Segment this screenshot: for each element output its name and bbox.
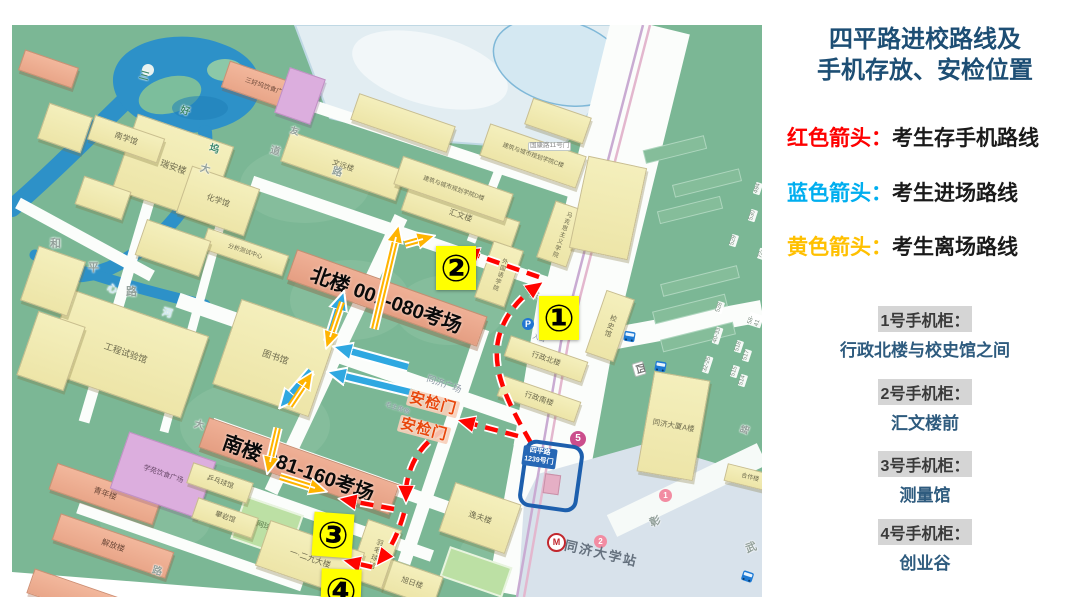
parking-letter: P: [525, 320, 531, 329]
cabinet-1-label: 1号手机柜：: [878, 306, 973, 332]
cabinet-3-label: 3号手机柜：: [878, 451, 973, 477]
place-label: 国康路11号门: [528, 142, 571, 151]
marker-number: ①: [543, 300, 574, 337]
legend-yellow-label: 黄色箭头：: [787, 236, 892, 259]
legend-blue-label: 蓝色箭头：: [787, 182, 892, 205]
building-label: 解放楼: [100, 538, 126, 554]
cabinet-3-info: 3号手机柜： 测量馆: [780, 451, 1070, 506]
road-label: 平: [88, 263, 99, 274]
metro-letter: M: [553, 538, 561, 547]
building-label: 学苑饮食广场: [142, 465, 184, 486]
building-label: 工程试验馆: [102, 341, 148, 365]
bus-stop-icon: [653, 359, 668, 374]
exam-route-infographic: 汇文楼图书馆行政北楼行政南楼校史馆逸夫楼旭日楼羽毛球馆一·二九大楼瑞安楼南学馆工…: [0, 0, 1080, 602]
siping-road-gate: 四平路 1239号门: [517, 438, 586, 514]
bus-stop-icon: [622, 329, 637, 344]
building-label: 分析测试中心: [227, 243, 263, 261]
panel-title-line1: 四平路进校路线及: [829, 26, 1021, 53]
cabinet-1-info: 1号手机柜： 行政北楼与校史馆之间: [780, 306, 1070, 361]
building-label: 行政北楼: [530, 350, 561, 368]
campus-map: 汇文楼图书馆行政北楼行政南楼校史馆逸夫楼旭日楼羽毛球馆一·二九大楼瑞安楼南学馆工…: [12, 25, 762, 597]
phone-cabinet-marker-3: ③: [312, 512, 355, 559]
gate-name-chip: 四平路 1239号门: [521, 445, 557, 469]
building-label: 逸夫楼: [467, 510, 493, 526]
cabinet-4-location: 创业谷: [780, 549, 1070, 574]
building-label: 校史馆: [602, 313, 617, 338]
cabinet-2-location: 汇文楼前: [780, 409, 1070, 434]
parking-icon: P: [522, 318, 534, 330]
legend-yellow-arrow: 黄色箭头：考生离场路线: [787, 231, 1018, 261]
road-label: 路: [126, 287, 137, 298]
cabinet-3-location: 测量馆: [780, 481, 1070, 506]
cabinet-4-label: 4号手机柜：: [878, 519, 973, 545]
building-label: 旭日楼: [400, 575, 424, 590]
cabinet-1-location: 行政北楼与校史馆之间: [780, 336, 1070, 361]
building-label: 乒乓球馆: [206, 475, 235, 491]
marker-number: ④: [325, 572, 358, 597]
building-label: 图书馆: [261, 349, 290, 367]
legend-red-desc: 考生存手机路线: [892, 127, 1039, 150]
phone-cabinet-marker-2: ②: [436, 246, 476, 290]
phone-cabinet-marker-4: ④: [320, 568, 362, 597]
legend-blue-arrow: 蓝色箭头：考生进场路线: [787, 177, 1018, 207]
building-label: 外国语学院: [490, 256, 508, 291]
building-label: 行政南楼: [523, 390, 554, 408]
building-label: 合作楼: [740, 473, 759, 484]
marker-number: ③: [316, 515, 350, 554]
building-label: 同济大厦A楼: [651, 418, 694, 434]
cabinet-2-label: 2号手机柜：: [878, 379, 973, 405]
gatehouse: [543, 473, 562, 495]
panel-title-line2: 手机存放、安检位置: [817, 57, 1033, 84]
metro-exit1-badge: 1: [659, 489, 672, 502]
legend-yellow-desc: 考生离场路线: [892, 236, 1018, 259]
road-label: 和: [50, 239, 61, 250]
building-label: 化学馆: [205, 193, 231, 209]
cabinet-4-info: 4号手机柜： 创业谷: [780, 519, 1070, 574]
marker-number: ②: [440, 250, 471, 287]
phone-cabinet-marker-1: ①: [539, 296, 579, 340]
legend-blue-desc: 考生进场路线: [892, 182, 1018, 205]
legend-red-arrow: 红色箭头：考生存手机路线: [787, 122, 1039, 152]
building-label: 瑞安楼: [159, 159, 188, 177]
line-number: 5: [575, 434, 581, 444]
building-label: 马克思主义学院: [550, 210, 572, 258]
cabinet-2-info: 2号手机柜： 汇文楼前: [780, 379, 1070, 434]
building-label: 南学馆: [113, 131, 139, 147]
building-label: 攀岩馆: [214, 511, 236, 525]
legend-panel: 四平路进校路线及 手机存放、安检位置 红色箭头：考生存手机路线 蓝色箭头：考生进…: [770, 0, 1080, 602]
exit-number: 1: [663, 492, 667, 500]
panel-title: 四平路进校路线及 手机存放、安检位置: [770, 24, 1080, 86]
legend-red-label: 红色箭头：: [787, 127, 892, 150]
building-label: 羽毛球馆: [366, 538, 384, 571]
